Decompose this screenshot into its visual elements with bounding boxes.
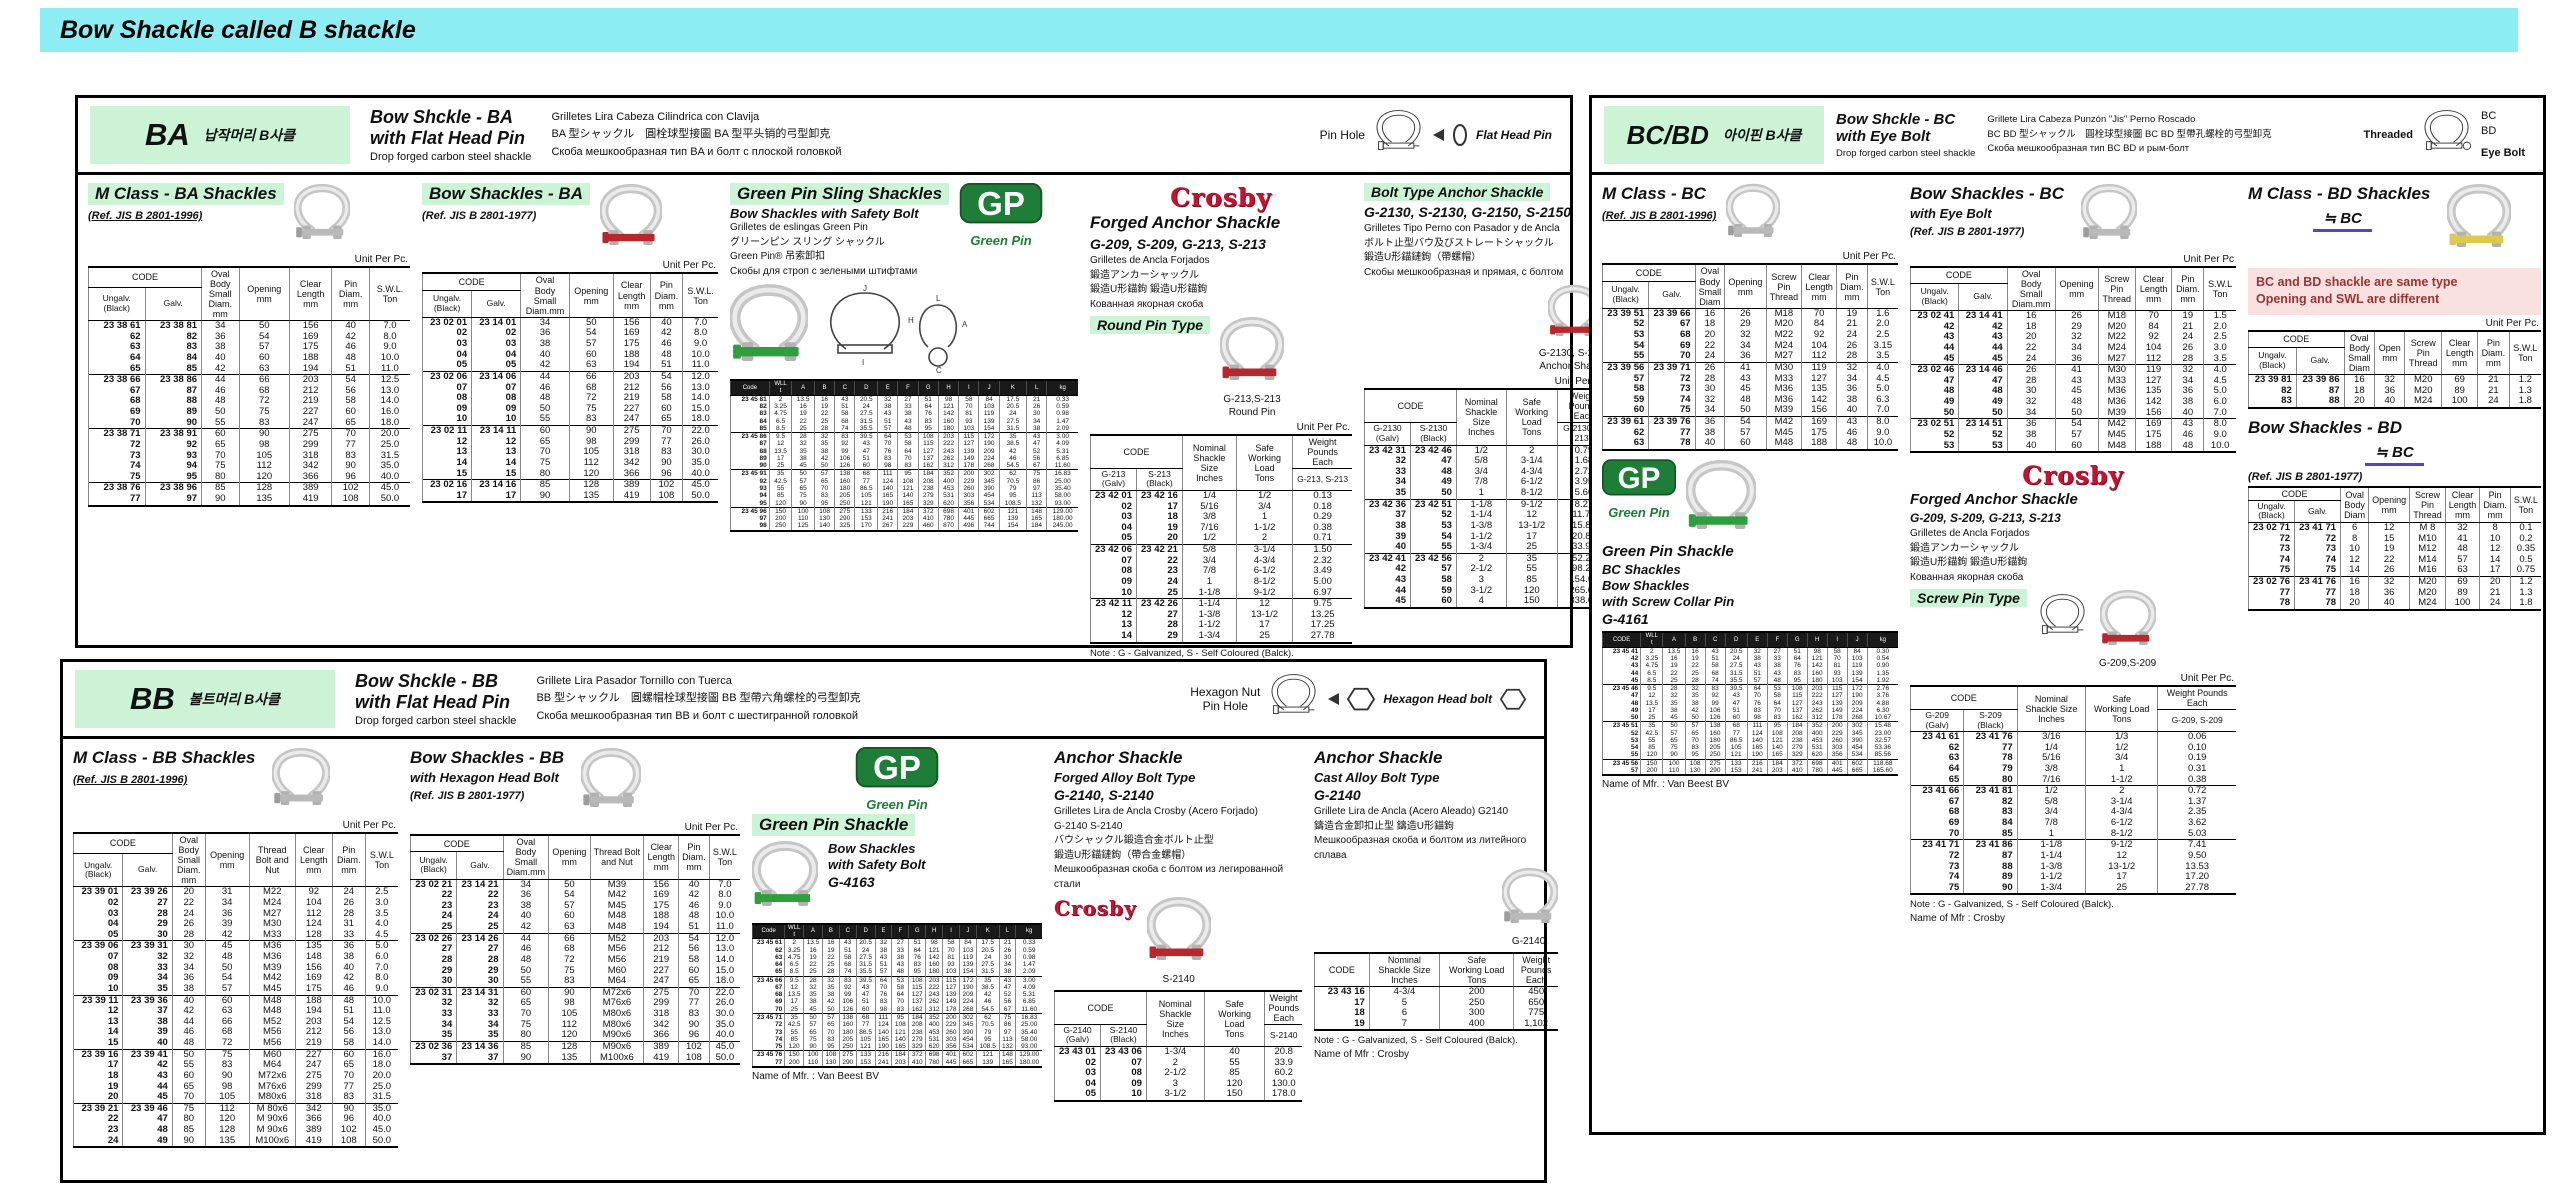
crosby-logo: Crosby: [1054, 896, 1137, 920]
cast-alloy-line-es: Grillete Lira de Ancla (Acero Aleado) G2…: [1314, 805, 1558, 820]
flat-pin-oval-icon: [1452, 123, 1468, 147]
svg-text:J: J: [863, 284, 867, 293]
bb-m-class-ref: (Ref. JIS B 2801-1996): [73, 774, 262, 786]
ba-greenpin-title: Green Pin Sling Shackles: [730, 183, 949, 205]
g209-table: CODENominal Shackle Size InchesSafe Work…: [1910, 685, 2236, 896]
bb-bow-ref: (Ref. JIS B 2801-1977): [410, 790, 571, 802]
bcbd-section-panel: BC/BD 아이핀 B사클 Bow Shckle - BC with Eye B…: [1589, 95, 2546, 1135]
svg-text:A: A: [962, 320, 968, 329]
ba-header: BA 납작머리 B사클 Bow Shckle - BA with Flat He…: [78, 98, 1570, 175]
bb-title: Bow Shckle - BB with Flat Head Pin Drop …: [355, 671, 516, 727]
bb-forged-alloy-title2: Forged Alloy Bolt Type: [1054, 770, 1302, 785]
cast-alloy-line-zh: 鑄造合金卸扣止型 鑄造U形錨鉤: [1314, 820, 1558, 835]
shackle-outline-icon: [1268, 669, 1320, 730]
bcbd-multilang-ja-zh: BC BD 型シャックル 圓栓球型接圖 BC BD 型帶孔螺栓的弓型卸克: [1987, 128, 2271, 143]
g4161-shackle-photo: [1686, 459, 1756, 542]
ba-tag-korean: 납작머리 B사클: [204, 125, 295, 145]
cast-alloy-line-ru: Мешкообразная скоба и болтом из литейног…: [1314, 834, 1558, 863]
galvanized-note: Note : G - Galvanized, S - Self Coloured…: [1314, 1035, 1558, 1046]
bb-cast-alloy-section: Anchor Shackle Cast Alloy Bolt Type G-21…: [1314, 747, 1558, 1148]
bd-note-box: BC and BD shackle are same type Opening …: [2248, 268, 2541, 315]
forged-line-es: Grilletes de Ancla Forjados: [1090, 254, 1352, 269]
forged-line-zh: 鍛造U形錨鉤 鍛造U形錨鉤: [1910, 556, 2236, 571]
unit-per-pc-label: Unit Per Pc.: [1602, 251, 1896, 262]
galvanized-note: Note : G - Galvanized, S - Self Coloured…: [1090, 648, 1352, 659]
forged-line-zh: 鍛造U形錨鉤 鍛造U形錨鉤: [1090, 283, 1352, 298]
forged-alloy-line-ja: バウシャックル鍛造合金ボルト止型: [1054, 834, 1302, 849]
crosby-logo: Crosby: [1090, 183, 1352, 212]
ba-body: M Class - BA Shackles (Ref. JIS B 2801-1…: [78, 175, 1570, 681]
ba-subtitle: Drop forged carbon steel shackle: [370, 151, 531, 163]
bd-bow-table: CODEOval Body DiamOpening mmScrew Pin Th…: [2248, 486, 2541, 611]
bc-m-class-title: M Class - BC: [1602, 183, 1713, 205]
bd-bow-title: Bow Shackles - BD: [2248, 417, 2409, 439]
ba-bolt-models: G-2130, S-2130, G-2150, S-2150: [1364, 204, 1610, 220]
ba-multilang-es: Grilletes Lira Cabeza Cilindrica con Cla…: [551, 109, 841, 126]
ba-multilang: Grilletes Lira Cabeza Cilindrica con Cla…: [551, 109, 841, 160]
svg-text:GP: GP: [1618, 462, 1661, 495]
svg-text:H: H: [908, 316, 914, 325]
eye-bolt-label: Eye Bolt: [2481, 146, 2525, 161]
bb-multilang-ja-zh: BB 型シャックル 圓螺帽栓球型接圖 BB 型帶六角螺栓的弓型卸克: [536, 690, 860, 707]
bb-cast-alloy-models: G-2140: [1314, 787, 1558, 803]
bc-bow-shackle-photo: [2081, 183, 2137, 251]
bcbd-body: M Class - BC (Ref. JIS B 2801-1996) Unit…: [1592, 175, 2543, 932]
bb-bow-shackle-photo: [581, 747, 641, 819]
svg-text:GP: GP: [873, 749, 921, 786]
bcbd-title-line1: Bow Shckle - BC: [1836, 111, 1975, 128]
bcbd-header: BC/BD 아이핀 B사클 Bow Shckle - BC with Eye B…: [1592, 98, 2543, 175]
s2140-shackle-photo: [1147, 896, 1211, 973]
bb-header: BB 볼트머리 B사클 Bow Shckle - BB with Flat He…: [63, 662, 1544, 739]
ba-multilang-ru: Скоба мешкообразная тип BA и болт с плос…: [551, 144, 841, 161]
g213-shackle-photo: [1220, 316, 1284, 393]
bc-greenpin-bc-shackles: BC Shackles: [1602, 562, 1898, 577]
forged-line-ja: 鍛造アンカーシャックル: [1910, 542, 2236, 557]
ba-title-line2: with Flat Head Pin: [370, 128, 531, 149]
pin-hole-label: Pin Hole: [1320, 128, 1365, 142]
g4161-model-label: G-4161: [1602, 611, 1898, 627]
g213-table: CODENominal Shackle Size InchesSafe Work…: [1090, 434, 1352, 644]
ba-title-line1: Bow Shckle - BA: [370, 107, 531, 128]
bb-greenpin-model: G-4163: [828, 874, 926, 890]
bb-multilang-es: Grillete Lira Pasador Tornillo con Tuerc…: [536, 673, 860, 690]
s2140-caption: S-2140: [1147, 973, 1211, 986]
bb-greenpin-sub1: Bow Shackles: [828, 841, 926, 856]
svg-text:I: I: [862, 358, 864, 367]
ba-m-class-title: M Class - BA Shackles: [88, 183, 284, 205]
bd-note-line1: BC and BD shackle are same type: [2256, 274, 2533, 292]
unit-per-pc-label: Unit Per Pc.: [2248, 318, 2539, 329]
bolt-line-ru: Скобы мешкообразная и прямая, с болтом: [1364, 266, 1610, 281]
bb-m-class-table: CODEOval Body Small Diam. mmOpening mmTh…: [73, 832, 398, 1148]
bb-subtitle: Drop forged carbon steel shackle: [355, 715, 516, 727]
shackle-outline-icon: [2037, 589, 2089, 650]
unit-per-pc-label: Unit Per Pc.: [1090, 422, 1350, 433]
ba-bolt-title: Bolt Type Anchor Shackle: [1364, 183, 1550, 201]
svg-text:GP: GP: [977, 185, 1025, 222]
bc-greenpin-bow-shackles: Bow Shackles: [1602, 578, 1898, 593]
bb-forged-alloy-title1: Anchor Shackle: [1054, 747, 1190, 769]
screw-pin-type-label: Screw Pin Type: [1910, 589, 2027, 607]
unit-per-pc-label: Unit Per Pc.: [73, 820, 396, 831]
bcbd-multilang-es: Grillete Lira Cabeza Punzón "Jis" Perno …: [1987, 113, 2271, 128]
forged-line-ja: 鍛造アンカーシャックル: [1090, 269, 1352, 284]
bb-greenpin-sub2: with Safety Bolt: [828, 857, 926, 872]
bc-m-class-table: CODEOval Body Small DiamOpening mmScrew …: [1602, 263, 1898, 450]
ba-bolt-section: Bolt Type Anchor Shackle G-2130, S-2130,…: [1364, 183, 1610, 673]
bb-bow-subtitle: with Hexagon Head Bolt: [410, 770, 571, 785]
bd-note-line2: Opening and SWL are different: [2256, 291, 2533, 309]
bc-bow-title: Bow Shackles - BC: [1910, 183, 2071, 205]
g4163-table: CodeWLL tABCDEFGHIJKLkg23 45 61213.51643…: [752, 923, 1042, 1068]
bolt-line-ja: ボルト止型バウ及びストレートシャックル: [1364, 237, 1610, 252]
green-pin-logo: GP Green Pin: [1602, 459, 1676, 520]
greenpin-line-ru: Скобы для строп с зелеными штифтами: [730, 265, 949, 280]
forged-alloy-line-ru: Мешкообразная скоба с болтом из легирова…: [1054, 863, 1302, 892]
ba-m-class-table: CODEOval Body Small Diam. mmOpening mmCl…: [88, 266, 410, 507]
bb-body: M Class - BB Shackles (Ref. JIS B 2801-1…: [63, 739, 1544, 1156]
bb-bow-table: CODEOval Body Small Diam.mmOpening mmThr…: [410, 834, 740, 1065]
eye-bolt-shackle-outline-icon: [2421, 105, 2473, 166]
greenpin-shackle-photo: [752, 840, 818, 919]
g2140-cast-shackle-photo: [1502, 867, 1558, 935]
bcbd-tag-korean: 아이핀 B사클: [1723, 125, 1801, 145]
bb-m-class-section: M Class - BB Shackles (Ref. JIS B 2801-1…: [73, 747, 398, 1148]
bb-title-line2: with Flat Head Pin: [355, 692, 516, 713]
bd-m-class-title: M Class - BD Shackles: [2248, 183, 2437, 205]
unit-per-pc-label: Unit Per Pc.: [410, 822, 738, 833]
ba-title: Bow Shckle - BA with Flat Head Pin Drop …: [370, 107, 531, 163]
ba-forged-section: Crosby Forged Anchor Shackle G-209, S-20…: [1090, 183, 1352, 673]
bb-m-class-shackle-photo: [272, 747, 330, 817]
bc-bd-marks: BC BD Eye Bolt: [2481, 109, 2525, 161]
bcbd-title-line2: with Eye Bolt: [1836, 128, 1975, 145]
page-title-banner: Bow Shackle called B shackle: [40, 8, 2518, 52]
hexagon-nut-pin-hole-label: Hexagon Nut Pin Hole: [1190, 685, 1260, 713]
bcbd-col1: M Class - BC (Ref. JIS B 2801-1996) Unit…: [1602, 183, 1898, 924]
bolt-line-es: Grilletes Tipo Perno con Pasador y de An…: [1364, 222, 1610, 237]
bb-forged-alloy-models: G-2140, S-2140: [1054, 787, 1302, 803]
ba-m-class-shackle-photo: [294, 183, 350, 251]
bb-m-class-title: M Class - BB Shackles: [73, 747, 262, 769]
bcbd-tag-code: BC/BD: [1627, 120, 1709, 151]
unit-per-pc-label: Unit Per Pc.: [1364, 376, 1608, 387]
bc-m-class-ref: (Ref. JIS B 2801-1996): [1602, 210, 1716, 222]
ba-greenpin-table: CodeWLL tABCDEFGHIJKLkg23 45 81213.51643…: [730, 379, 1078, 531]
bd-bow-ref: (Ref. JIS B 2801-1977): [2248, 471, 2541, 483]
unit-per-pc-label: Unit Per Pc.: [1910, 673, 2234, 684]
bc-mark: BC: [2481, 109, 2525, 124]
bb-cast-alloy-title2: Cast Alloy Bolt Type: [1314, 770, 1558, 785]
bcbd-col3: M Class - BD Shackles ≒ BC BC and BD sha…: [2248, 183, 2541, 924]
unit-per-pc-label: Unit Per Pc.: [422, 260, 716, 271]
bc-greenpin-screw-collar: with Screw Collar Pin: [1602, 594, 1898, 609]
bb-greenpin-section: GP Green Pin Green Pin Shackle Bow Shack…: [752, 747, 1042, 1148]
forged-line-es: Grilletes de Ancla Forjados: [1910, 527, 2236, 542]
g2140-caption: G-2140,: [1502, 935, 1558, 948]
green-pin-logo: GP Green Pin: [855, 747, 939, 812]
bb-tag-korean: 볼트머리 B사클: [189, 689, 280, 709]
threaded-label: Threaded: [2363, 129, 2413, 141]
bb-bow-title: Bow Shackles - BB: [410, 747, 571, 769]
bcbd-tag: BC/BD 아이핀 B사클: [1604, 106, 1824, 164]
forged-line-ru: Кованная якорная скоба: [1090, 298, 1352, 313]
bd-approx-bc-label: ≒ BC: [2313, 209, 2371, 232]
g4161-table: CODEWLL tABCDEFGHIJkg23 45 41213.5164320…: [1602, 631, 1898, 776]
forged-alloy-line-es: Grilletes Lira de Ancla Crosby (Acero Fo…: [1054, 805, 1302, 820]
ba-multilang-ja-zh: BA 型シャックル 圓栓球型接圖 BA 型平头销的弓型卸克: [551, 126, 841, 143]
dimension-diagram: JHI LAC: [818, 283, 968, 375]
arrow-left-icon: [1433, 129, 1444, 141]
hexagon-icon: [1347, 687, 1375, 711]
ba-bow-table: CODEOval Body Small Diam.mmOpening mmCle…: [422, 272, 718, 503]
bb-title-line1: Bow Shckle - BB: [355, 671, 516, 692]
bcbd-multilang-ru: Скоба мешкообразная тип BC BD и рым-болт: [1987, 142, 2271, 157]
bcbd-col2: Bow Shackles - BC with Eye Bolt (Ref. JI…: [1910, 183, 2236, 924]
page-title: Bow Shackle called B shackle: [40, 16, 416, 45]
ba-forged-models: G-209, S-209, G-213, S-213: [1090, 236, 1352, 252]
ba-bow-shackle-photo: [600, 183, 662, 257]
ba-forged-title: Forged Anchor Shackle: [1090, 212, 1287, 234]
bcbd-forged-title: Forged Anchor Shackle: [1910, 490, 2085, 509]
crosby-logo: Crosby: [1910, 461, 2236, 490]
bd-m-class-table: CODEOval Body Small DiamOpen mmScrew Pin…: [2248, 330, 2541, 409]
bc-bow-table: CODEOval Body Small Diam.mmOpening mmScr…: [1910, 266, 2236, 453]
bb-section-panel: BB 볼트머리 B사클 Bow Shckle - BB with Flat He…: [60, 659, 1547, 1183]
unit-per-pc-label: Unit Per Pc: [1910, 254, 2234, 265]
forged-alloy-line-models: G-2140 S-2140: [1054, 820, 1302, 835]
g213-caption: G-213,S-213 Round Pin: [1220, 393, 1284, 419]
bc-greenpin-title: Green Pin Shackle: [1602, 542, 1741, 561]
bb-tag: BB 볼트머리 B사클: [75, 670, 335, 728]
ba-m-class-ref: (Ref. JIS B 2801-1996): [88, 210, 284, 222]
bolt-line-zh: 鍛造U形錨鏈鉤（帶螺帽）: [1364, 251, 1610, 266]
bb-greenpin-title: Green Pin Shackle: [752, 814, 915, 836]
hexagon-head-bolt-label: Hexagon Head bolt: [1383, 692, 1492, 706]
greenpin-shackle-photo: [730, 283, 808, 375]
greenpin-line-ja: グリーンピン スリング シャックル: [730, 236, 949, 251]
g209-caption: G-209,S-209: [2099, 657, 2156, 670]
bcbd-subtitle: Drop forged carbon steel shackle: [1836, 148, 1975, 159]
bc-bow-subtitle: with Eye Bolt: [1910, 206, 2071, 221]
bd-bow-approx-bc-label: ≒ BC: [2365, 443, 2423, 466]
bb-pin-diagram: Hexagon Nut Pin Hole Hexagon Head bolt: [1190, 669, 1532, 730]
hexagon-icon: [1500, 688, 1526, 711]
ba-pin-diagram: Pin Hole Flat Head Pin: [1320, 105, 1558, 166]
green-pin-logo-text: Green Pin: [855, 797, 939, 812]
unit-per-pc-label: Unit Per Pc.: [88, 254, 408, 265]
ba-bow-section: Bow Shackles - BA (Ref. JIS B 2801-1977)…: [422, 183, 718, 673]
bcbd-multilang: Grillete Lira Cabeza Punzón "Jis" Perno …: [1987, 113, 2271, 157]
ba-bow-title: Bow Shackles - BA: [422, 183, 590, 205]
ba-m-class-section: M Class - BA Shackles (Ref. JIS B 2801-1…: [88, 183, 410, 673]
forged-line-ru: Кованная якорная скоба: [1910, 571, 2236, 586]
shackle-outline-icon: [1373, 105, 1425, 166]
mfr-vanbeest-label: Name of Mfr. : Van Beest BV: [752, 1071, 1042, 1082]
flat-head-pin-label: Flat Head Pin: [1476, 128, 1552, 142]
ba-tag-code: BA: [145, 117, 190, 153]
bb-bow-section: Bow Shackles - BB with Hexagon Head Bolt…: [410, 747, 740, 1148]
arrow-left-icon: [1328, 693, 1339, 705]
galvanized-note: Note : G - Galvanized, S - Self Coloured…: [1910, 899, 2236, 910]
round-pin-type-label: Round Pin Type: [1090, 316, 1210, 334]
bc-bow-ref: (Ref. JIS B 2801-1977): [1910, 226, 2071, 238]
bcbd-pin-diagram: Threaded BC BD Eye Bolt: [2363, 105, 2531, 166]
bb-multilang-ru: Скоба мешкообразная тип BB и болт с шест…: [536, 708, 860, 725]
ba-greenpin-subtitle: Bow Shackles with Safety Bolt: [730, 206, 949, 221]
bc-m-class-shackle-photo: [1726, 183, 1780, 248]
greenpin-line-zh: Green Pin® 吊索卸扣: [730, 250, 949, 265]
ba-section-panel: BA 납작머리 B사클 Bow Shckle - BA with Flat He…: [75, 95, 1573, 648]
mfr-vanbeest-label: Name of Mfr. : Van Beest BV: [1602, 779, 1898, 790]
bcbd-forged-models: G-209, S-209, G-213, S-213: [1910, 511, 2236, 525]
g2130-table: CODENominal Shackle Size InchesSafe Work…: [1364, 388, 1610, 609]
bb-multilang: Grillete Lira Pasador Tornillo con Tuerc…: [536, 673, 860, 724]
forged-alloy-line-zh: 鍛造U形錨鏈鉤（帶合金螺帽）: [1054, 849, 1302, 864]
bcbd-title: Bow Shckle - BC with Eye Bolt Drop forge…: [1836, 111, 1975, 160]
mfr-crosby-label: Name of Mfr : Crosby: [1314, 1049, 1558, 1060]
svg-text:C: C: [936, 366, 942, 375]
g2140-forged-table: CODENominal Shackle Size InchesSafe Work…: [1054, 990, 1302, 1102]
svg-text:L: L: [936, 294, 941, 303]
greenpin-line-es: Grilletes de eslingas Green Pin: [730, 221, 949, 236]
g2140-cast-table: CODENominal Shackle Size InchesSafe Work…: [1314, 952, 1558, 1032]
bb-tag-code: BB: [130, 681, 175, 717]
green-pin-logo-text: Green Pin: [959, 233, 1043, 248]
ba-tag: BA 납작머리 B사클: [90, 106, 350, 164]
ba-bow-ref: (Ref. JIS B 2801-1977): [422, 210, 590, 222]
ba-greenpin-section: Green Pin Sling Shackles Bow Shackles wi…: [730, 183, 1078, 673]
green-pin-logo: GP Green Pin: [959, 183, 1043, 248]
g209-shackle-photo: [2100, 589, 2156, 657]
bb-forged-alloy-section: Anchor Shackle Forged Alloy Bolt Type G-…: [1054, 747, 1302, 1148]
mfr-crosby-label: Name of Mfr : Crosby: [1910, 913, 2236, 924]
bd-shackle-photo-yellow-pin: [2447, 183, 2511, 260]
bd-mark: BD: [2481, 124, 2525, 139]
bb-cast-alloy-title1: Anchor Shackle: [1314, 747, 1450, 769]
green-pin-logo-text: Green Pin: [1602, 505, 1676, 520]
